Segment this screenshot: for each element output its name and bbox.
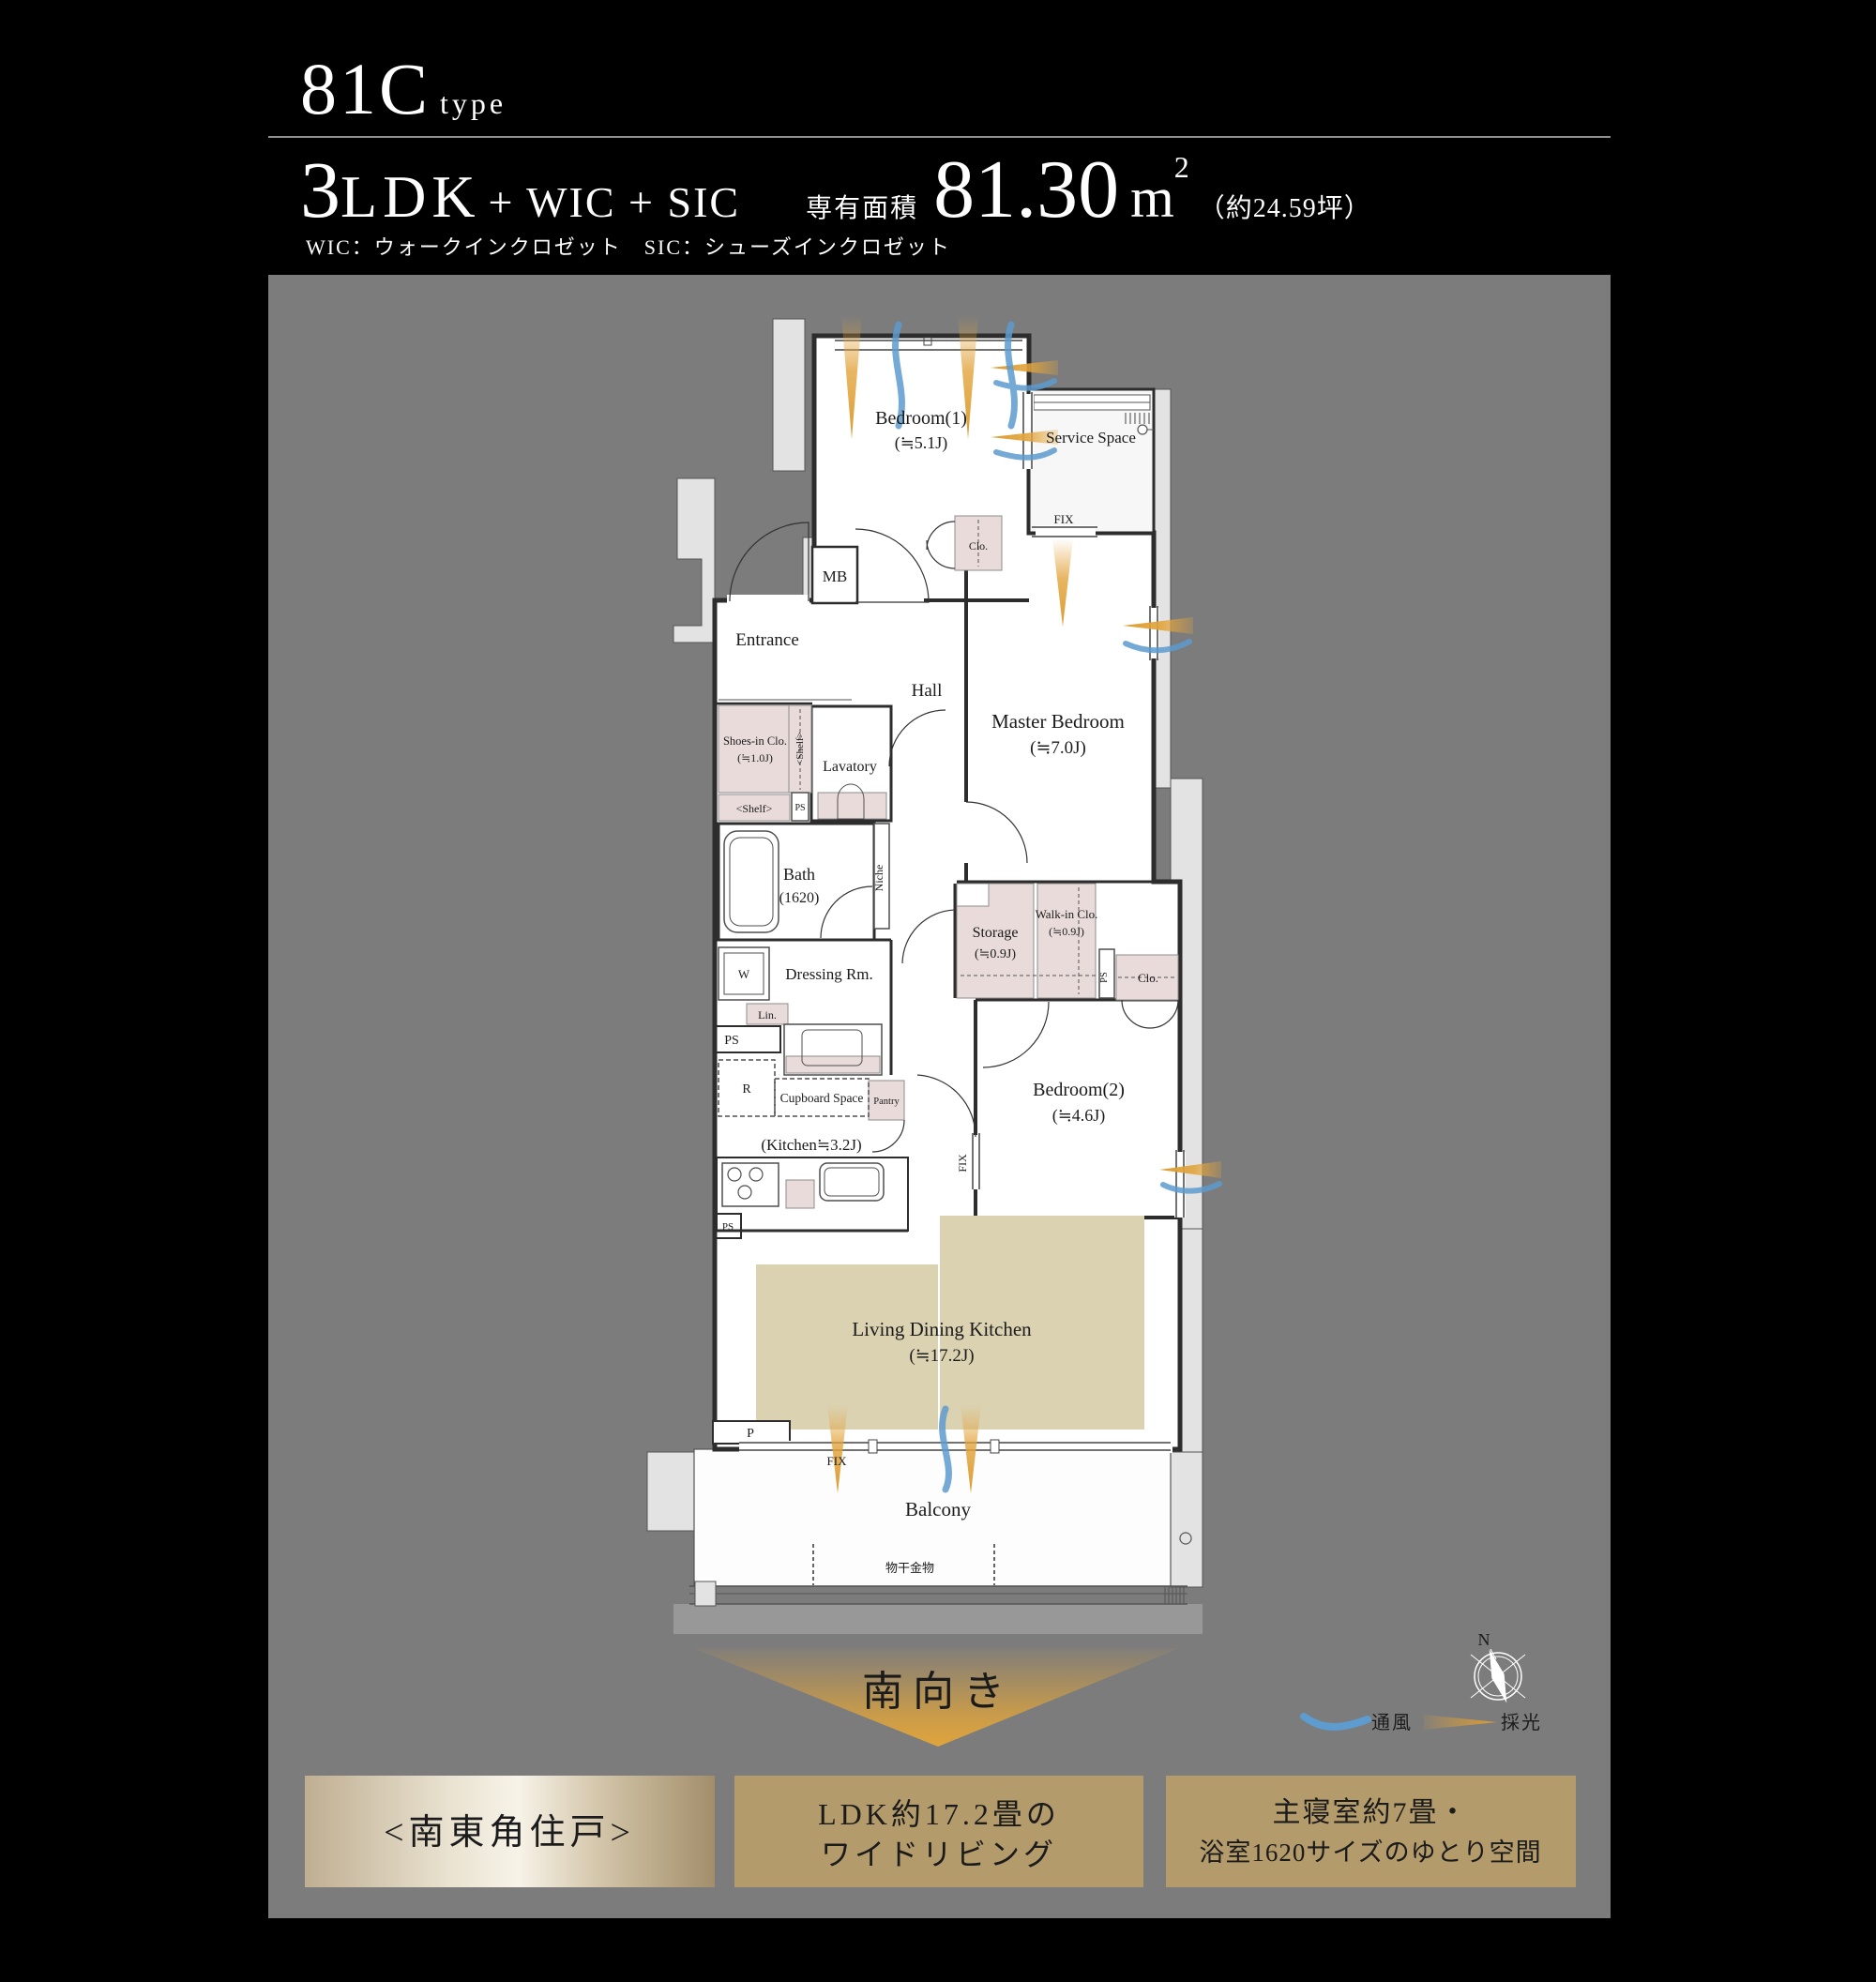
compass: N (1471, 1630, 1525, 1705)
label-niche: Niche (872, 865, 885, 892)
label-fix-service: FIX (1054, 512, 1075, 526)
area-value: 81.30 (933, 143, 1119, 237)
label-ldk-size: (≒17.2J) (909, 1346, 974, 1366)
direction-arrow: 南向き (693, 1648, 1180, 1747)
east-band-top (1154, 389, 1171, 788)
highlight-box-master-line1: 主寝室約7畳・ (1273, 1797, 1469, 1828)
highlight-box-corner-text: <南東角住戸> (384, 1813, 635, 1853)
label-walkin-size: (≒0.9J) (1049, 925, 1084, 938)
direction-label: 南向き (862, 1669, 1014, 1715)
layout-letters: LDK (340, 162, 481, 232)
floorplan-svg: Bedroom(1) (≒5.1J) Service Space MB Clo.… (268, 275, 1611, 1918)
west-corridor-strip (773, 319, 805, 471)
label-clo-bedroom1: Clo. (969, 539, 988, 552)
label-ps-ldk: PS (722, 1221, 734, 1233)
label-shoes-clo: Shoes-in Clo. (723, 734, 787, 748)
walkin-closet (1037, 884, 1096, 998)
balcony-right-block (1171, 1452, 1203, 1587)
legend-ventilation-label: 通風 (1371, 1712, 1413, 1733)
kitchen-pink-unit (786, 1180, 814, 1208)
label-washer: W (738, 967, 750, 981)
balcony-post (695, 1581, 716, 1606)
area-unit: m (1130, 166, 1174, 231)
unit-code: 81C (300, 48, 431, 129)
label-kitchen: (Kitchen≒3.2J) (761, 1136, 861, 1154)
balcony-hatch (1165, 1587, 1184, 1603)
ventilation-icon (1304, 1717, 1368, 1727)
label-fix-ldk: FIX (827, 1454, 848, 1468)
label-clo-bedroom2: Clo. (1138, 971, 1158, 985)
storage-notch (957, 884, 989, 906)
label-bedroom1: Bedroom(1) (875, 408, 967, 429)
label-bedroom2-size: (≒4.6J) (1052, 1106, 1106, 1126)
label-bedroom2: Bedroom(2) (1033, 1080, 1125, 1100)
balcony-area (673, 1449, 1203, 1634)
layout-additions: + WIC + SIC (489, 177, 741, 227)
label-shoes-clo-size: (≒1.0J) (737, 751, 773, 764)
label-fix-bedroom2: FIX (956, 1154, 969, 1173)
area-tsubo: （約24.59坪） (1199, 188, 1371, 225)
daylight-icon (1424, 1715, 1497, 1730)
page: { "header": { "unit_code": "81C", "unit_… (0, 0, 1876, 1982)
highlight-boxes: <南東角住戸> LDK約17.2畳の ワイドリビング 主寝室約7畳・ 浴室162… (305, 1776, 1576, 1887)
label-mb: MB (823, 567, 847, 585)
highlight-box-master (1166, 1776, 1576, 1887)
label-drying-hardware: 物干金物 (885, 1561, 934, 1575)
label-master-size: (≒7.0J) (1030, 738, 1086, 758)
floorplan-panel: Bedroom(1) (≒5.1J) Service Space MB Clo.… (268, 275, 1611, 1918)
spec-row: 3 LDK + WIC + SIC 専有面積 81.30 m 2 （約24.59… (300, 143, 1371, 237)
area-label: 専有面積 (806, 188, 918, 225)
label-storage-size: (≒0.9J) (975, 947, 1016, 961)
label-linen: Lin. (758, 1008, 777, 1021)
label-bedroom1-size: (≒5.1J) (895, 433, 948, 453)
area-unit-sup: 2 (1174, 150, 1189, 185)
unit-code-suffix: type (440, 86, 507, 120)
abbreviation-note: WIC：ウォークインクロゼット SIC：シューズインクロゼット (306, 231, 951, 261)
compass-n-label: N (1478, 1630, 1490, 1649)
legend-daylight-label: 採光 (1501, 1712, 1542, 1733)
label-hall: Hall (912, 681, 943, 701)
highlight-box-ldk-line1: LDK約17.2畳の (818, 1797, 1060, 1831)
west-porch (673, 478, 715, 643)
label-p-box: P (747, 1427, 754, 1441)
balcony-slab (673, 1604, 1203, 1634)
label-refrigerator: R (742, 1082, 751, 1097)
label-bath: Bath (783, 865, 815, 884)
title-divider (268, 136, 1611, 138)
label-shelf-vertical: <Shelf> (794, 732, 806, 765)
label-storage: Storage (973, 925, 1019, 941)
service-space-structure (1029, 389, 1154, 538)
highlight-box-ldk-line2: ワイドリビング (821, 1838, 1057, 1871)
label-cupboard: Cupboard Space (780, 1091, 864, 1105)
lavatory-counter (818, 793, 886, 819)
unit-title: 81Ctype (300, 47, 507, 131)
label-service-space: Service Space (1046, 429, 1136, 446)
vanity-lower (786, 1056, 880, 1073)
layout-number: 3 (300, 143, 340, 236)
label-walkin: Walk-in Clo. (1036, 907, 1098, 921)
label-ps-walkin: PS (1099, 972, 1110, 983)
label-ldk: Living Dining Kitchen (852, 1318, 1032, 1340)
label-entrance: Entrance (735, 630, 799, 650)
legend: 通風 採光 (1304, 1712, 1542, 1733)
label-dressing-room: Dressing Rm. (785, 965, 873, 983)
label-lavatory: Lavatory (823, 759, 877, 775)
label-ps-mid: PS (724, 1034, 739, 1048)
label-pantry: Pantry (873, 1097, 900, 1107)
label-shelf-horizontal: <Shelf> (736, 802, 773, 815)
label-ps-entrance: PS (794, 803, 805, 813)
label-master-bedroom: Master Bedroom (991, 710, 1125, 733)
label-balcony: Balcony (905, 1498, 971, 1521)
label-bath-size: (1620) (779, 890, 820, 906)
highlight-box-master-line2: 浴室1620サイズのゆとり空間 (1199, 1838, 1541, 1867)
